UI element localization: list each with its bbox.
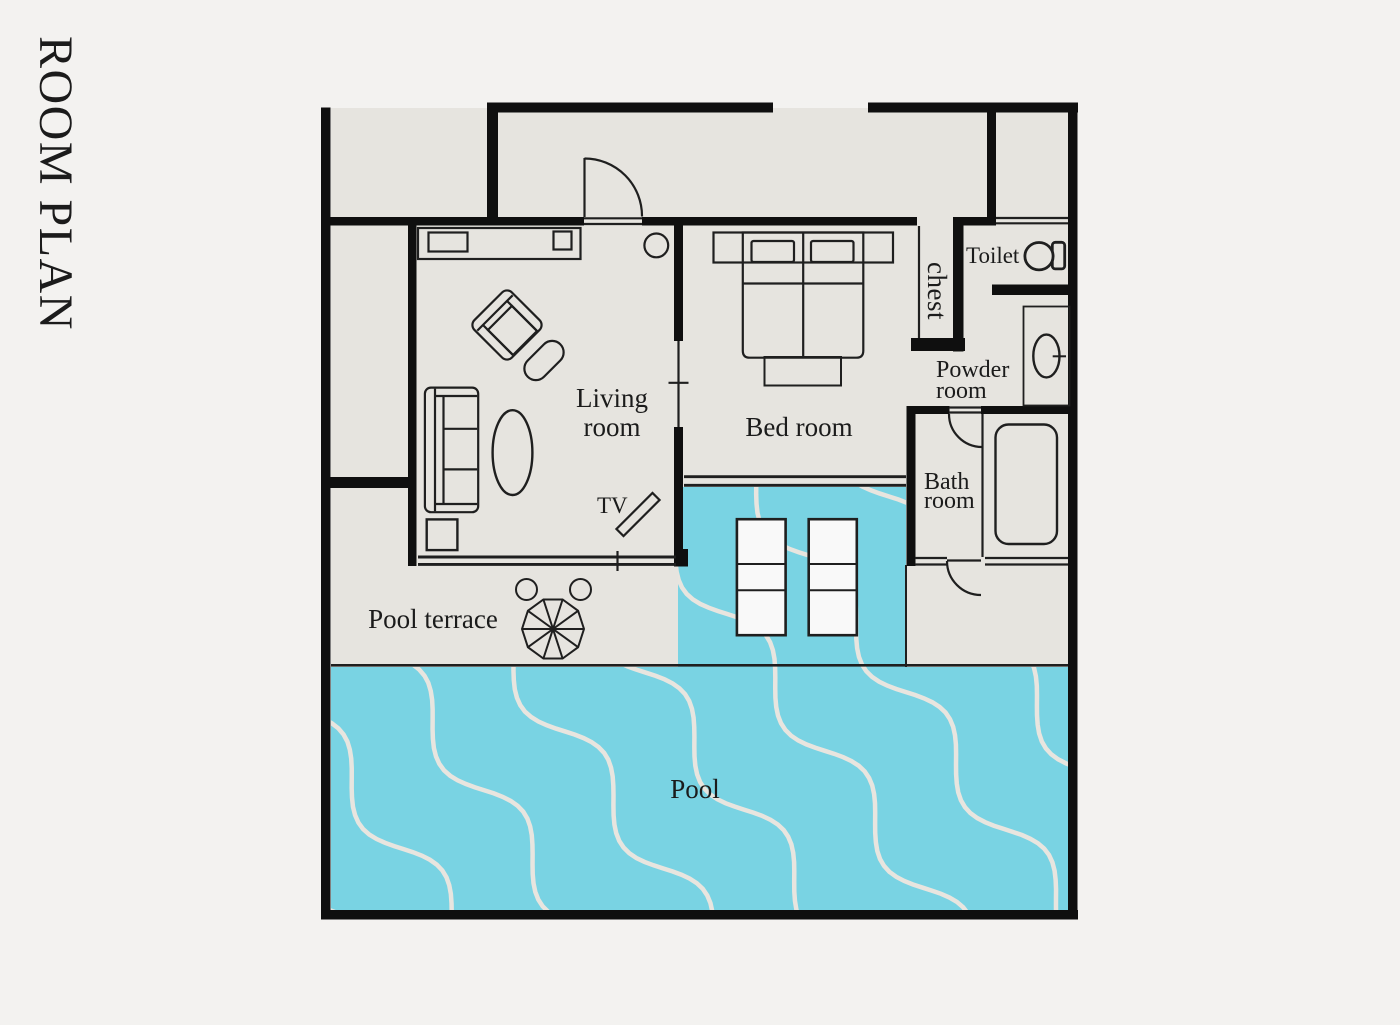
- svg-text:room: room: [584, 412, 641, 442]
- svg-text:ROOM PLAN: ROOM PLAN: [29, 36, 82, 331]
- svg-text:chest: chest: [922, 262, 952, 320]
- svg-text:Pool: Pool: [670, 774, 720, 804]
- svg-text:room: room: [924, 488, 975, 514]
- svg-text:room: room: [936, 378, 987, 404]
- svg-text:Toilet: Toilet: [966, 243, 1020, 268]
- svg-text:Pool terrace: Pool terrace: [368, 604, 498, 634]
- svg-text:Bed room: Bed room: [745, 412, 852, 442]
- svg-text:TV: TV: [597, 493, 628, 518]
- svg-text:Living: Living: [576, 383, 648, 413]
